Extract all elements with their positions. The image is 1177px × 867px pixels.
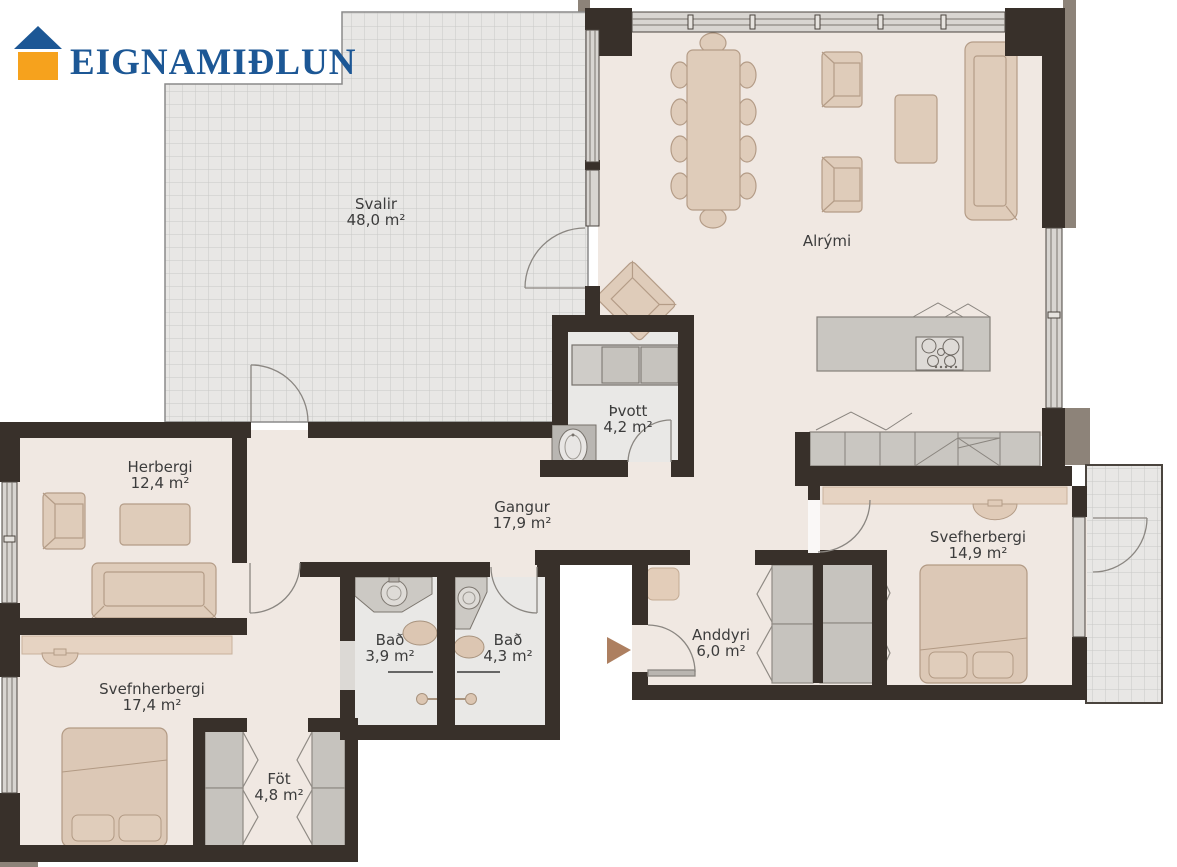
room-label-herbergi: Herbergi 12,4 m² — [127, 460, 192, 491]
room-label-svefherbergi: Svefherbergi 14,9 m² — [930, 530, 1026, 561]
room-area: 12,4 m² — [127, 476, 192, 492]
room-label-alrymi: Alrými — [803, 234, 851, 250]
toilet — [454, 636, 484, 658]
dining-table — [687, 50, 740, 210]
sofa-long — [965, 42, 1017, 220]
room-area: 6,0 m² — [692, 644, 750, 660]
window — [2, 677, 17, 793]
cooktop — [916, 337, 963, 370]
sofa — [92, 563, 216, 618]
entry-arrow-icon — [607, 637, 631, 664]
room-area: 48,0 m² — [347, 213, 406, 229]
window — [1046, 228, 1062, 408]
window — [586, 30, 599, 162]
balcony-door-panel — [1073, 517, 1085, 637]
dryer — [641, 347, 678, 383]
room-area: 14,9 m² — [930, 546, 1026, 562]
window — [2, 482, 17, 603]
pillow — [72, 815, 114, 841]
window — [632, 12, 1005, 32]
balcony-small — [1086, 465, 1162, 703]
floorplan-page: Svalir 48,0 m² Alrými Herbergi 12,4 m² Þ… — [0, 0, 1177, 867]
armchair — [43, 493, 85, 549]
doormat — [647, 568, 679, 600]
coffee-table — [120, 504, 190, 545]
laundry-units — [572, 345, 680, 385]
sliding-door — [340, 641, 355, 690]
room-label-svalir: Svalir 48,0 m² — [347, 197, 406, 228]
window — [586, 170, 599, 226]
room-area: 4,2 m² — [603, 420, 652, 436]
room-area: 17,9 m² — [493, 516, 552, 532]
armchair — [822, 52, 862, 107]
room-area: 4,3 m² — [483, 649, 532, 665]
house-icon — [14, 26, 62, 80]
room-area: 3,9 m² — [365, 649, 414, 665]
washer — [602, 347, 639, 383]
wall-shelf — [823, 487, 1067, 504]
bed-double — [920, 565, 1027, 683]
room-label-bad-1: Bað 3,9 m² — [365, 633, 414, 664]
room-label-bad-2: Bað 4,3 m² — [483, 633, 532, 664]
brand-logo: EIGNAMIÐLUN — [14, 26, 356, 80]
room-area: 4,8 m² — [254, 788, 303, 804]
room-area: 17,4 m² — [99, 698, 205, 714]
room-name: Alrými — [803, 234, 851, 250]
room-label-fot: Föt 4,8 m² — [254, 772, 303, 803]
armchair — [822, 157, 862, 212]
pillow — [973, 652, 1013, 678]
room-label-gangur: Gangur 17,9 m² — [493, 500, 552, 531]
room-label-anddyri: Anddyri 6,0 m² — [692, 628, 750, 659]
door-opening — [808, 500, 820, 553]
floor-plan — [0, 0, 1177, 867]
room-label-thvott: Þvott 4,2 m² — [603, 404, 652, 435]
bed-double — [62, 728, 167, 847]
coffee-table — [895, 95, 937, 163]
pillow — [929, 652, 967, 678]
room-label-svefnherbergi: Svefnherbergi 17,4 m² — [99, 682, 205, 713]
brand-name: EIGNAMIÐLUN — [70, 46, 356, 80]
pillow — [119, 815, 161, 841]
